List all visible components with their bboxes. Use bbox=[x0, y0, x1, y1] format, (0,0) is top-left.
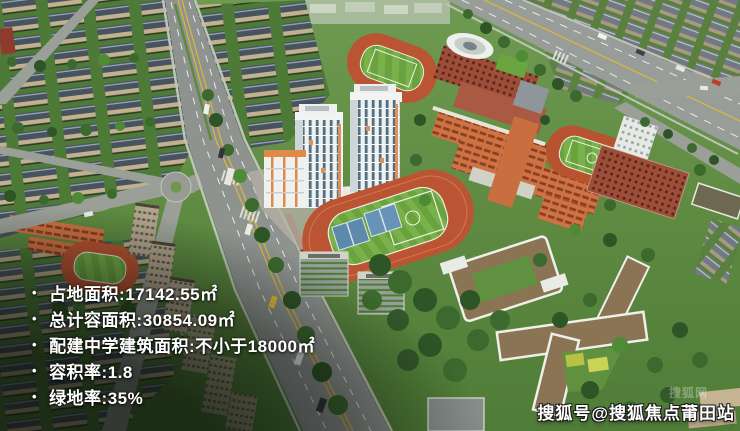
bullet-icon: • bbox=[32, 389, 37, 404]
stat-text: 占地面积:17142.55㎡ bbox=[49, 280, 218, 305]
stat-text: 配建中学建筑面积:不小于18000㎡ bbox=[49, 332, 315, 357]
building-partial-bottom bbox=[428, 398, 484, 431]
stat-land-area: • 占地面积:17142.55㎡ bbox=[26, 279, 315, 305]
stat-total-floor-area: • 总计容面积:30854.09㎡ bbox=[26, 305, 315, 331]
sohu-watermark: 搜狐号@搜狐焦点莆田站 bbox=[537, 399, 735, 424]
stat-text: 绿地率:35% bbox=[49, 384, 143, 409]
distant-city-haze bbox=[300, 0, 450, 24]
aerial-render-screenshot: • 占地面积:17142.55㎡ • 总计容面积:30854.09㎡ • 配建中… bbox=[0, 0, 740, 431]
stat-text: 容积率:1.8 bbox=[49, 358, 133, 383]
project-stats-list: • 占地面积:17142.55㎡ • 总计容面积:30854.09㎡ • 配建中… bbox=[26, 279, 315, 409]
bullet-icon: • bbox=[32, 363, 37, 378]
stat-green-ratio: • 绿地率:35% bbox=[26, 383, 315, 409]
stat-text: 总计容面积:30854.09㎡ bbox=[49, 306, 235, 331]
stat-school-area: • 配建中学建筑面积:不小于18000㎡ bbox=[26, 331, 315, 357]
tower-b bbox=[350, 84, 402, 192]
bullet-icon: • bbox=[32, 337, 37, 352]
bullet-icon: • bbox=[32, 285, 37, 300]
bullet-icon: • bbox=[32, 311, 37, 326]
low-rise-white-orange bbox=[264, 150, 306, 208]
stat-plot-ratio: • 容积率:1.8 bbox=[26, 357, 315, 383]
